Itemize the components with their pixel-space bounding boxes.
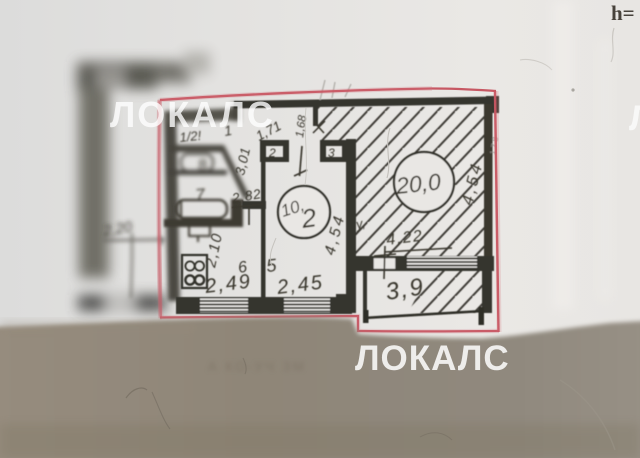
- svg-text:Л: Л: [629, 99, 640, 138]
- svg-text:ЛОКАЛС: ЛОКАЛС: [355, 339, 510, 378]
- svg-text:20,0: 20,0: [394, 168, 442, 199]
- svg-text:h=: h=: [611, 1, 635, 25]
- svg-text:ЛОКАЛС: ЛОКАЛС: [110, 94, 275, 135]
- svg-text:2: 2: [268, 146, 276, 160]
- svg-text:А КО-УЧ ЗМ: А КО-УЧ ЗМ: [208, 359, 306, 374]
- svg-text:3: 3: [328, 146, 335, 160]
